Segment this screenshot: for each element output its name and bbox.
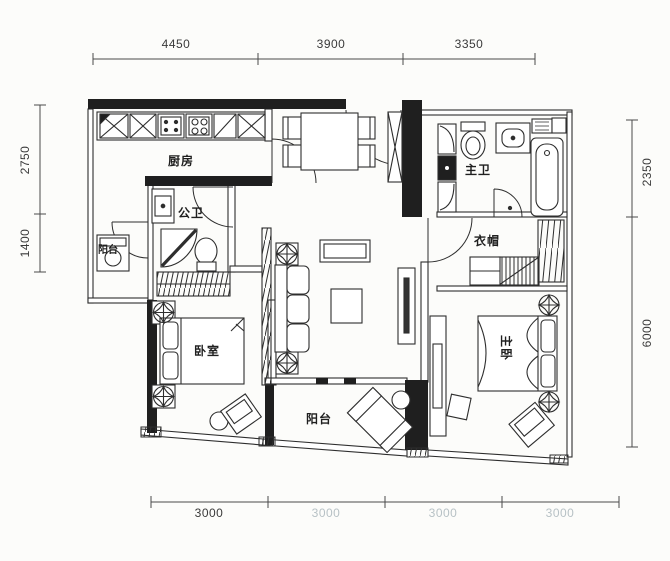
- master-bedroom-furniture: [430, 316, 557, 447]
- dining-set: [283, 113, 375, 170]
- lamp-symbol: [277, 353, 297, 373]
- dim-top-1: 4450: [162, 38, 191, 50]
- lamp-symbol: [539, 295, 559, 315]
- room-label-cloakroom: 衣帽: [474, 235, 500, 247]
- lamp-symbol: [154, 303, 174, 323]
- dim-top-3: 3350: [455, 38, 484, 50]
- room-label-bedroom: 卧室: [194, 345, 220, 357]
- dim-right-2: 6000: [641, 319, 653, 348]
- dim-top-2: 3900: [317, 38, 346, 50]
- dim-right-1: 2350: [641, 158, 653, 187]
- guest-bath-fixtures: [152, 189, 217, 271]
- dim-bottom-3: 3000: [429, 507, 458, 519]
- lamp-symbol: [539, 392, 559, 412]
- kitchen-counter: [97, 112, 265, 140]
- floor-plan-svg: [0, 0, 670, 561]
- hatched-wall: [262, 228, 271, 385]
- lamp-symbol: [277, 244, 297, 264]
- room-label-guest-bath: 公卫: [178, 207, 204, 219]
- room-label-balcony-bottom: 阳台: [306, 413, 332, 425]
- duct-shaft: [388, 112, 402, 182]
- floor-plan-page: 4450 3900 3350 2750 1400 2350 6000 3000 …: [0, 0, 670, 561]
- dim-left-1: 2750: [19, 146, 31, 175]
- room-label-kitchen: 厨房: [168, 155, 194, 167]
- cloakroom-wardrobe: [470, 220, 564, 285]
- dim-bottom-2: 3000: [312, 507, 341, 519]
- dim-left-2: 1400: [19, 229, 31, 258]
- living-room-furniture: [275, 240, 415, 374]
- closet-band: [157, 272, 230, 296]
- dim-bottom-1: 3000: [195, 507, 224, 519]
- dim-bottom-4: 3000: [546, 507, 575, 519]
- lamp-symbol: [154, 387, 174, 407]
- lounge-chair: [347, 387, 412, 452]
- room-label-master-bath: 主卫: [465, 164, 491, 176]
- master-bath-fixtures: [438, 118, 566, 216]
- room-label-master-bedroom: 主卧: [500, 335, 512, 361]
- room-label-balcony-left: 阳台: [98, 246, 118, 256]
